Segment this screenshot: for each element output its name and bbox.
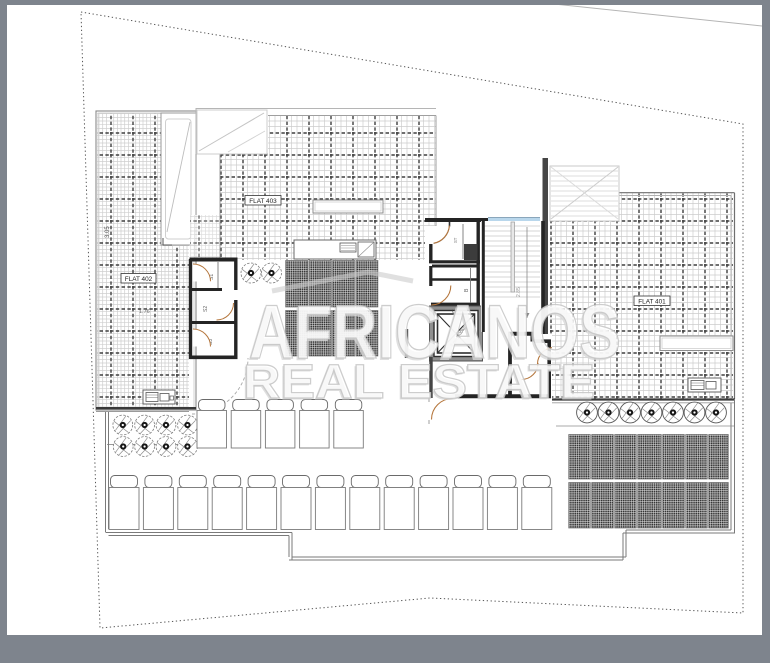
svg-text:FLAT 403: FLAT 403 xyxy=(249,198,277,205)
svg-text:ST: ST xyxy=(453,237,458,243)
svg-text:REAL ESTATE: REAL ESTATE xyxy=(243,356,595,409)
svg-text:3.05: 3.05 xyxy=(105,226,111,238)
svg-text:FLAT 401: FLAT 401 xyxy=(638,299,666,306)
svg-text:1.76: 1.76 xyxy=(139,309,150,315)
svg-text:FLAT 402: FLAT 402 xyxy=(125,276,153,283)
svg-text:S2: S2 xyxy=(203,306,209,312)
